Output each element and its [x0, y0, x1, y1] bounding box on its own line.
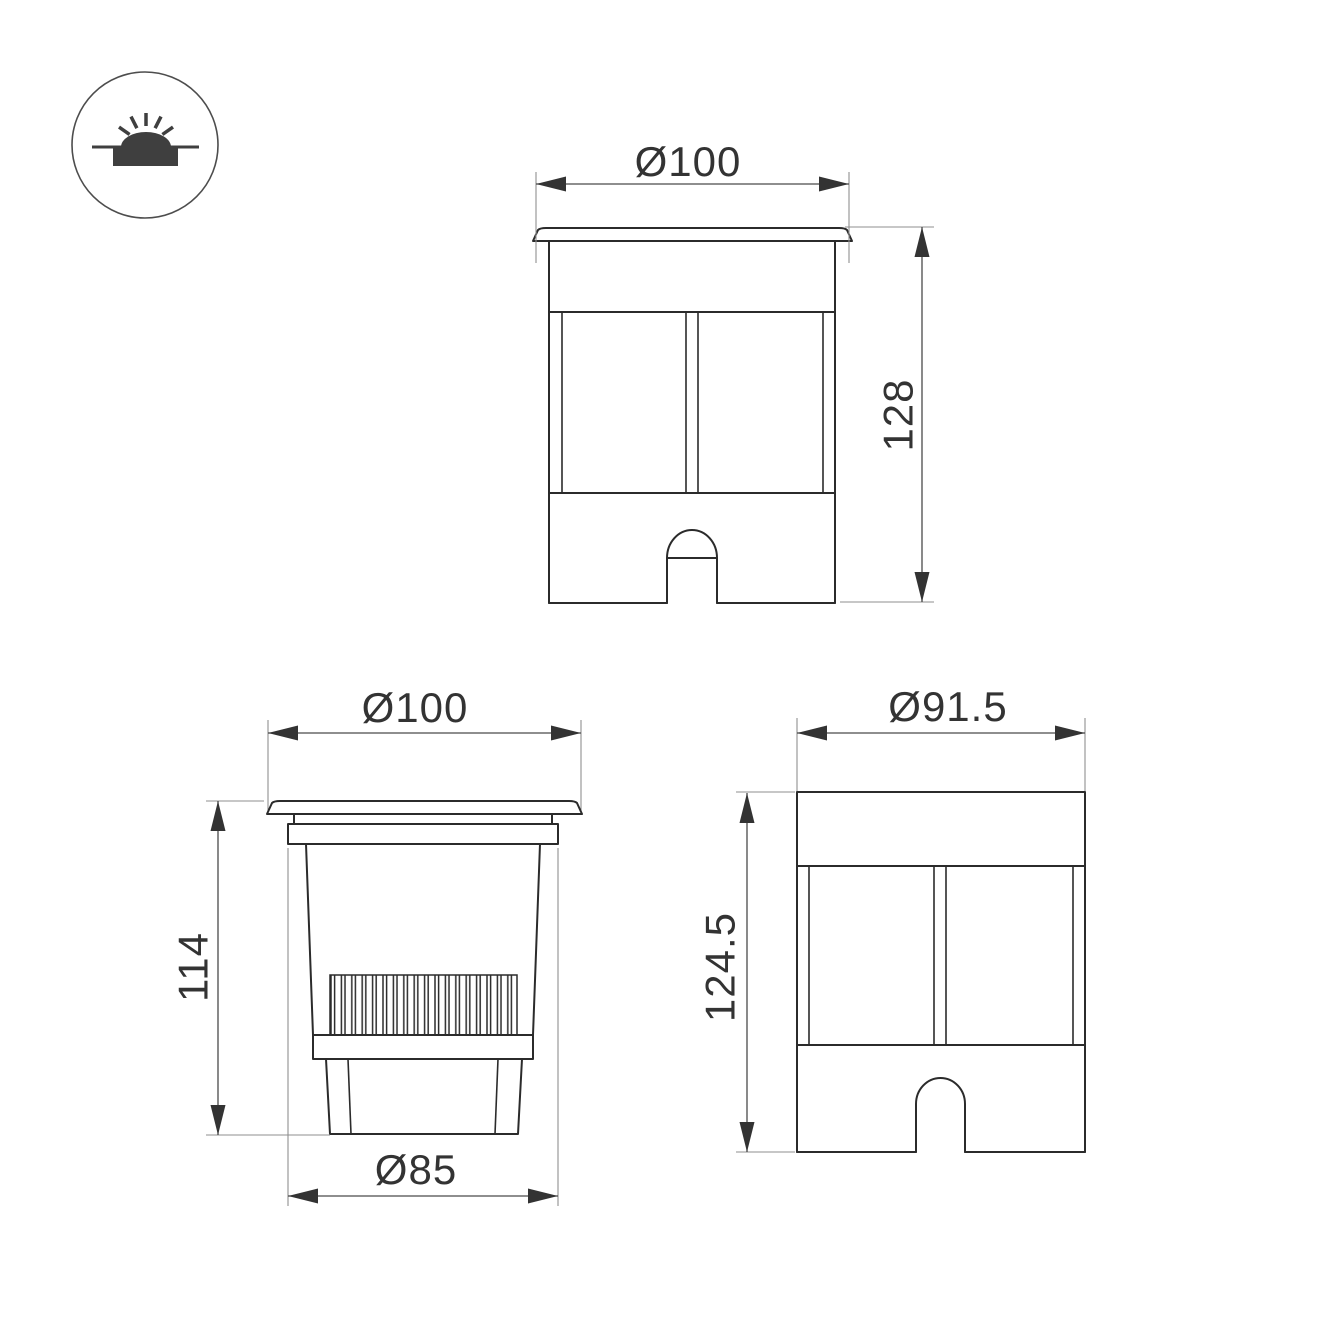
front-body: [549, 241, 835, 603]
arrow-down: [740, 1122, 755, 1152]
icon-lamp-body: [113, 148, 178, 166]
arrow-right: [528, 1189, 558, 1204]
arrow-right: [819, 177, 849, 192]
body-cable-notch: [916, 1078, 965, 1152]
section-base-diameter-label: Ø85: [375, 1146, 457, 1193]
icon-light-rays: [119, 113, 173, 135]
body-diameter-label: Ø91.5: [888, 683, 1007, 730]
front-height-label: 128: [875, 378, 922, 451]
front-view: Ø100 128: [533, 138, 934, 603]
body-height-dimension: 124.5: [697, 792, 795, 1152]
arrow-left: [536, 177, 566, 192]
section-driver-band: [313, 1035, 533, 1059]
section-diameter-label: Ø100: [362, 684, 469, 731]
section-flange: [267, 801, 582, 814]
section-collar: [288, 814, 558, 844]
section-heatsink-fins: [330, 975, 517, 1035]
section-view: Ø100 114: [170, 684, 582, 1206]
front-glass-panels: [562, 312, 823, 493]
inground-luminaire-icon: [72, 72, 218, 218]
drawing-stage: Ø100 128 Ø100: [0, 0, 1331, 1331]
body-diameter-dimension: Ø91.5: [797, 683, 1085, 792]
front-height-dimension: 128: [840, 227, 934, 602]
section-diameter-dimension: Ø100: [268, 684, 581, 813]
arrow-left: [268, 726, 298, 741]
section-height-label: 114: [170, 932, 217, 1002]
body-height-label: 124.5: [697, 912, 744, 1022]
luminaire-dimension-drawing: Ø100 128 Ø100: [0, 0, 1331, 1331]
arrow-up: [211, 801, 226, 831]
arrow-down: [211, 1105, 226, 1135]
arrow-left: [288, 1189, 318, 1204]
body-glass-panels: [809, 866, 1073, 1045]
front-flange: [533, 228, 852, 241]
arrow-down: [915, 572, 930, 602]
front-cable-notch: [667, 530, 717, 603]
front-diameter-label: Ø100: [635, 138, 742, 185]
section-base: [326, 1059, 522, 1134]
arrow-up: [915, 227, 930, 257]
arrow-right: [1055, 726, 1085, 741]
arrow-left: [797, 726, 827, 741]
body-view: Ø91.5 124.5: [697, 683, 1085, 1152]
body-outline: [797, 792, 1085, 1152]
front-diameter-dimension: Ø100: [536, 138, 849, 263]
arrow-right: [551, 726, 581, 741]
arrow-up: [740, 793, 755, 823]
